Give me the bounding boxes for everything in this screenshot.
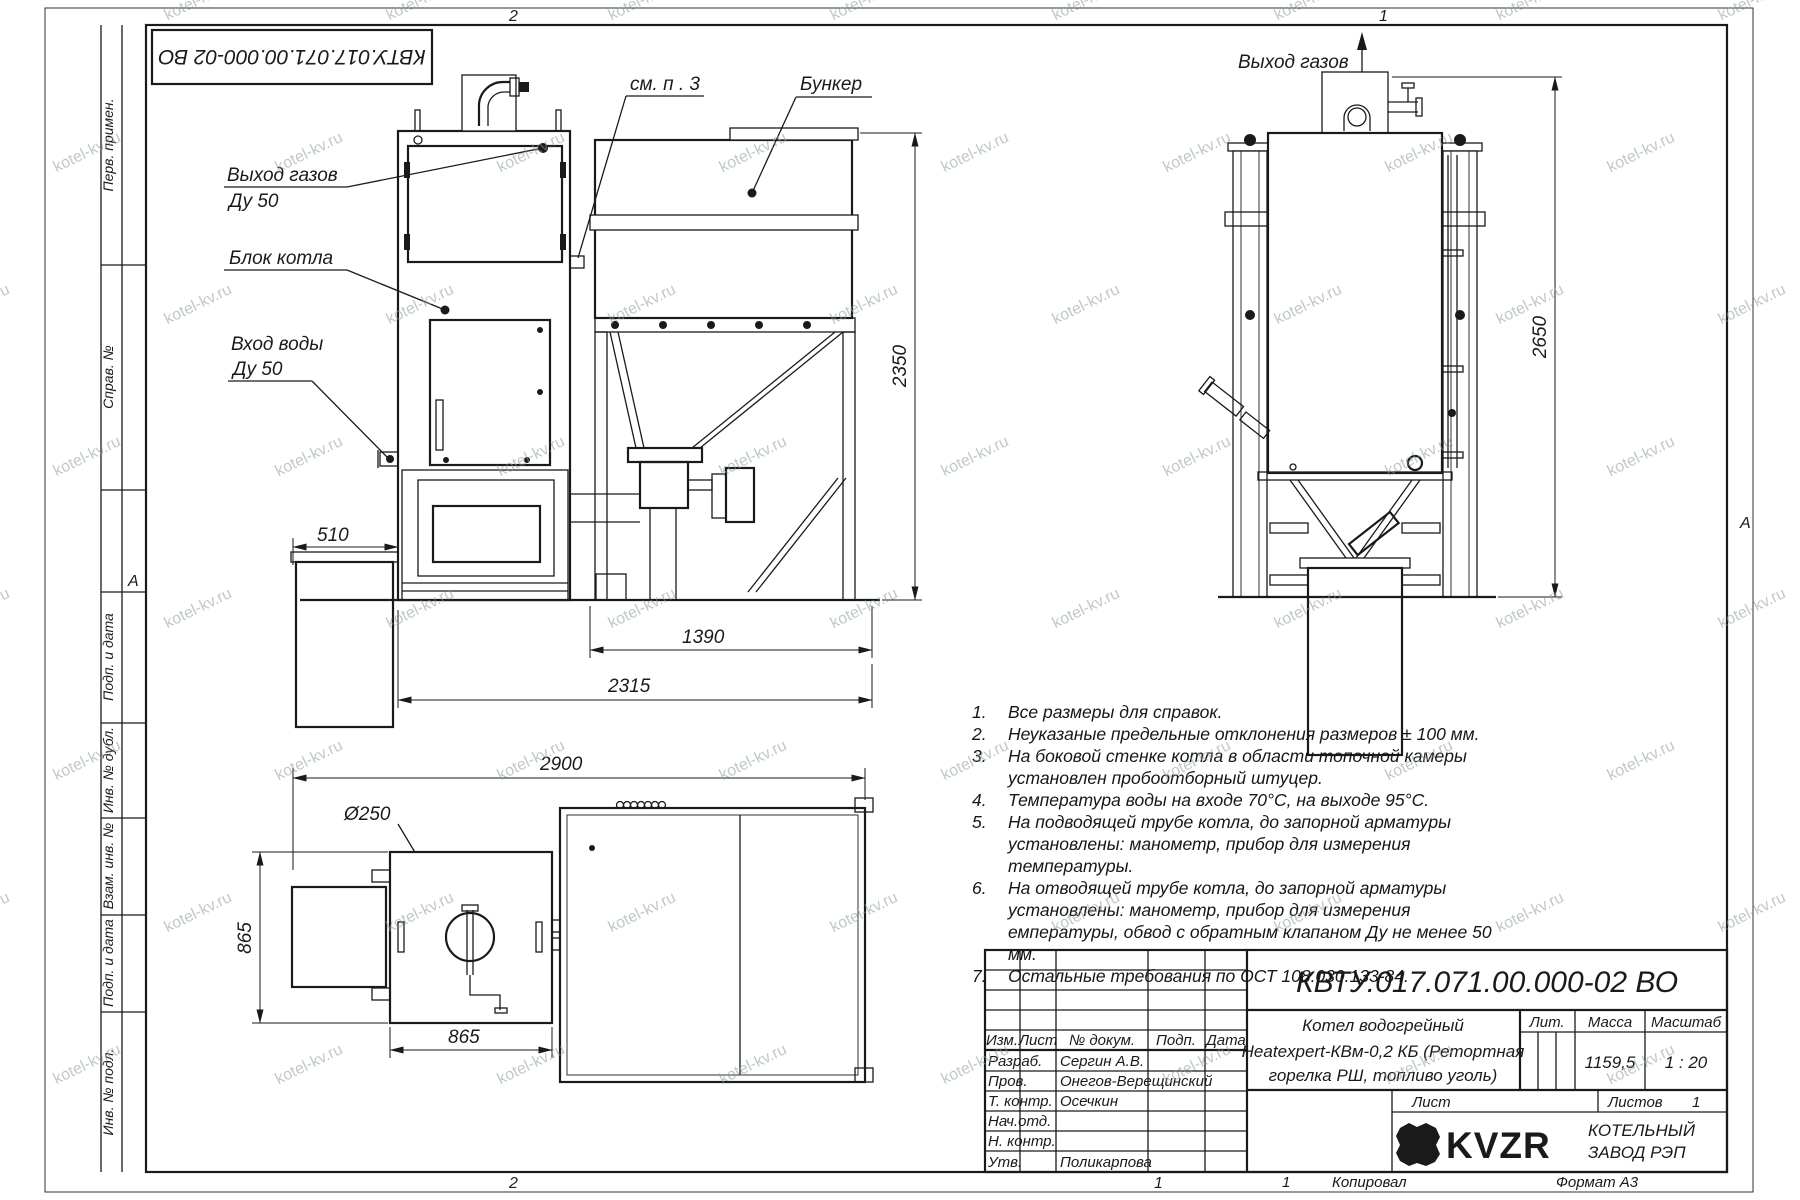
footer-format: Формат А3 (1556, 1174, 1639, 1191)
mass-header: Масса (1588, 1014, 1632, 1031)
note-item: 4. Температура воды на входе 70°С, на вы… (972, 789, 1538, 811)
label-bunker: Бункер (800, 74, 862, 95)
ash-box-plan (292, 887, 386, 987)
note-item: 3. На боковой стенке котла в области топ… (972, 745, 1538, 789)
sidebar-label: Инв. № подл. (100, 1049, 116, 1136)
product-title: Heatexpert-КВм-0,2 КБ (Ретортная (1242, 1042, 1525, 1061)
sidebar-label: Подп. и дата (100, 919, 116, 1007)
company-name: ЗАВОД РЭП (1588, 1143, 1686, 1162)
note-item: 2. Неуказаные предельные отклонения разм… (972, 723, 1538, 745)
note-item: 5. На подводящей трубе котла, до запорно… (972, 811, 1538, 877)
signature-name: Сергин А.В. (1060, 1053, 1144, 1070)
note-number: 6. (972, 877, 1008, 965)
fold-marker-a-right: А (1739, 515, 1751, 532)
note-text: Остальные требования по ОСТ 108.030.133-… (1008, 965, 1513, 987)
bunker-plan (560, 798, 873, 1082)
ash-box (291, 552, 398, 727)
signature-name: Поликарпова (1060, 1154, 1152, 1171)
fold-marker-a-left: А (127, 573, 139, 590)
ash-funnel (1290, 480, 1420, 558)
scale-value: 1 : 20 (1665, 1053, 1708, 1072)
side-view: Выход газов (1199, 32, 1562, 755)
label-boiler-block: Блок котла (229, 248, 333, 269)
sheets-label: Листов (1607, 1094, 1663, 1111)
footer-copied: Копировал (1332, 1174, 1407, 1191)
notes-block: 1. Все размеры для справок. 2. Неуказаны… (972, 701, 1538, 987)
doc-number-inverted: КВТУ.017.071.00.000-02 ВО (158, 45, 425, 68)
sidebar-label: Подп. и дата (100, 613, 116, 701)
signature-role: Утв. (987, 1154, 1022, 1171)
label-water-inlet: Вход воды (231, 334, 323, 355)
label-see-note: см. п . 3 (630, 74, 700, 95)
mass-value: 1159,5 (1585, 1053, 1636, 1072)
note-number: 3. (972, 745, 1008, 789)
note-text: Все размеры для справок. (1008, 701, 1513, 723)
sheet-label: Лист (1411, 1094, 1451, 1111)
zone-marker: 1 (1154, 1175, 1163, 1192)
dim-text: 865 (235, 922, 256, 954)
dim-text: 2315 (607, 676, 651, 697)
bunker (590, 128, 858, 600)
dim-865-left: 865 (235, 852, 388, 1023)
label-diameter: Ø250 (343, 804, 391, 825)
signature-name: Осечкин (1060, 1093, 1118, 1110)
note-text: На боковой стенке котла в области топочн… (1008, 745, 1513, 789)
note-number: 4. (972, 789, 1008, 811)
front-view: Выход газов Ду 50 Блок котла Вход воды Д… (224, 74, 922, 727)
lit-header: Лит. (1528, 1014, 1564, 1031)
footer-number: 1 (1282, 1174, 1290, 1191)
col-header: Лист (1018, 1032, 1058, 1049)
col-header: № докум. (1069, 1032, 1135, 1049)
burner-motor (726, 468, 754, 522)
sidebar-label: Взам. инв. № (100, 823, 116, 910)
label-gas-outlet-side: Выход газов (1238, 52, 1349, 73)
col-header: Дата (1204, 1032, 1246, 1049)
note-number: 2. (972, 723, 1008, 745)
sampling-stub (570, 256, 584, 268)
dim-text: 2350 (890, 344, 911, 388)
plan-view: 2900 Ø250 (235, 754, 873, 1082)
sheets-value: 1 (1692, 1094, 1700, 1111)
sidebar-label: Инв. № дубл. (100, 727, 116, 813)
note-number: 1. (972, 701, 1008, 723)
retort-burner (570, 448, 754, 600)
sidebar-label: Справ. № (100, 345, 116, 409)
dim-510: 510 (293, 525, 398, 565)
note-item: 6. На отводящей трубе котла, до запорной… (972, 877, 1538, 965)
drawing-canvas: Перв. примен. Справ. № Подп. и дата Инв.… (0, 0, 1800, 1200)
zone-marker: 2 (508, 1175, 518, 1192)
signature-role: Разраб. (988, 1053, 1042, 1070)
dim-text: 1390 (682, 627, 725, 648)
dim-text: 510 (317, 525, 349, 546)
label-water-inlet-size: Ду 50 (231, 359, 283, 380)
dim-2315: 2315 (398, 610, 872, 708)
product-title: горелка РШ, топливо уголь) (1269, 1066, 1498, 1085)
boiler-plan (390, 852, 552, 1023)
note-item: 1. Все размеры для справок. (972, 701, 1538, 723)
note-text: Неуказаные предельные отклонения размеро… (1008, 723, 1513, 745)
signature-role: Нач.отд. (988, 1113, 1051, 1130)
signature-name: Онегов-Верещинский (1060, 1073, 1213, 1090)
boiler-body-side (1268, 133, 1442, 473)
sidebar-label: Перв. примен. (100, 98, 116, 191)
up-arrow (1357, 32, 1367, 50)
dim-2350: 2350 (860, 133, 922, 600)
zone-marker: 1 (1379, 8, 1388, 25)
dim-text: 865 (448, 1027, 480, 1048)
signature-role: Пров. (988, 1073, 1028, 1090)
note-number: 7. (972, 965, 1008, 987)
dim-text: 2900 (539, 754, 583, 775)
col-header: Подп. (1156, 1032, 1196, 1049)
company-name: КОТЕЛЬНЫЙ (1588, 1120, 1696, 1140)
dim-1390: 1390 (590, 606, 872, 658)
kvzr-logo-icon (1396, 1123, 1440, 1166)
signature-role: Н. контр. (988, 1133, 1056, 1150)
product-title: Котел водогрейный (1302, 1016, 1464, 1035)
scale-header: Масштаб (1651, 1014, 1722, 1031)
chimney-side (1322, 72, 1388, 133)
note-text: На подводящей трубе котла, до запорной а… (1008, 811, 1513, 877)
note-text: На отводящей трубе котла, до запорной ар… (1008, 877, 1513, 965)
col-header: Изм. (986, 1032, 1018, 1049)
signature-role: Т. контр. (988, 1093, 1053, 1110)
dim-865-bottom: 865 (390, 1027, 552, 1058)
label-gas-outlet-size: Ду 50 (227, 191, 279, 212)
drawing-sheet: Перв. примен. Справ. № Подп. и дата Инв.… (0, 0, 1800, 1200)
note-number: 5. (972, 811, 1008, 877)
label-gas-outlet: Выход газов (227, 165, 338, 186)
feeder-housing (402, 470, 568, 600)
zone-marker: 2 (508, 8, 518, 25)
note-text: Температура воды на входе 70°С, на выход… (1008, 789, 1513, 811)
dim-text: 2650 (1530, 315, 1551, 359)
kvzr-logo-text: KVZR (1446, 1125, 1551, 1166)
note-item: 7. Остальные требования по ОСТ 108.030.1… (972, 965, 1538, 987)
